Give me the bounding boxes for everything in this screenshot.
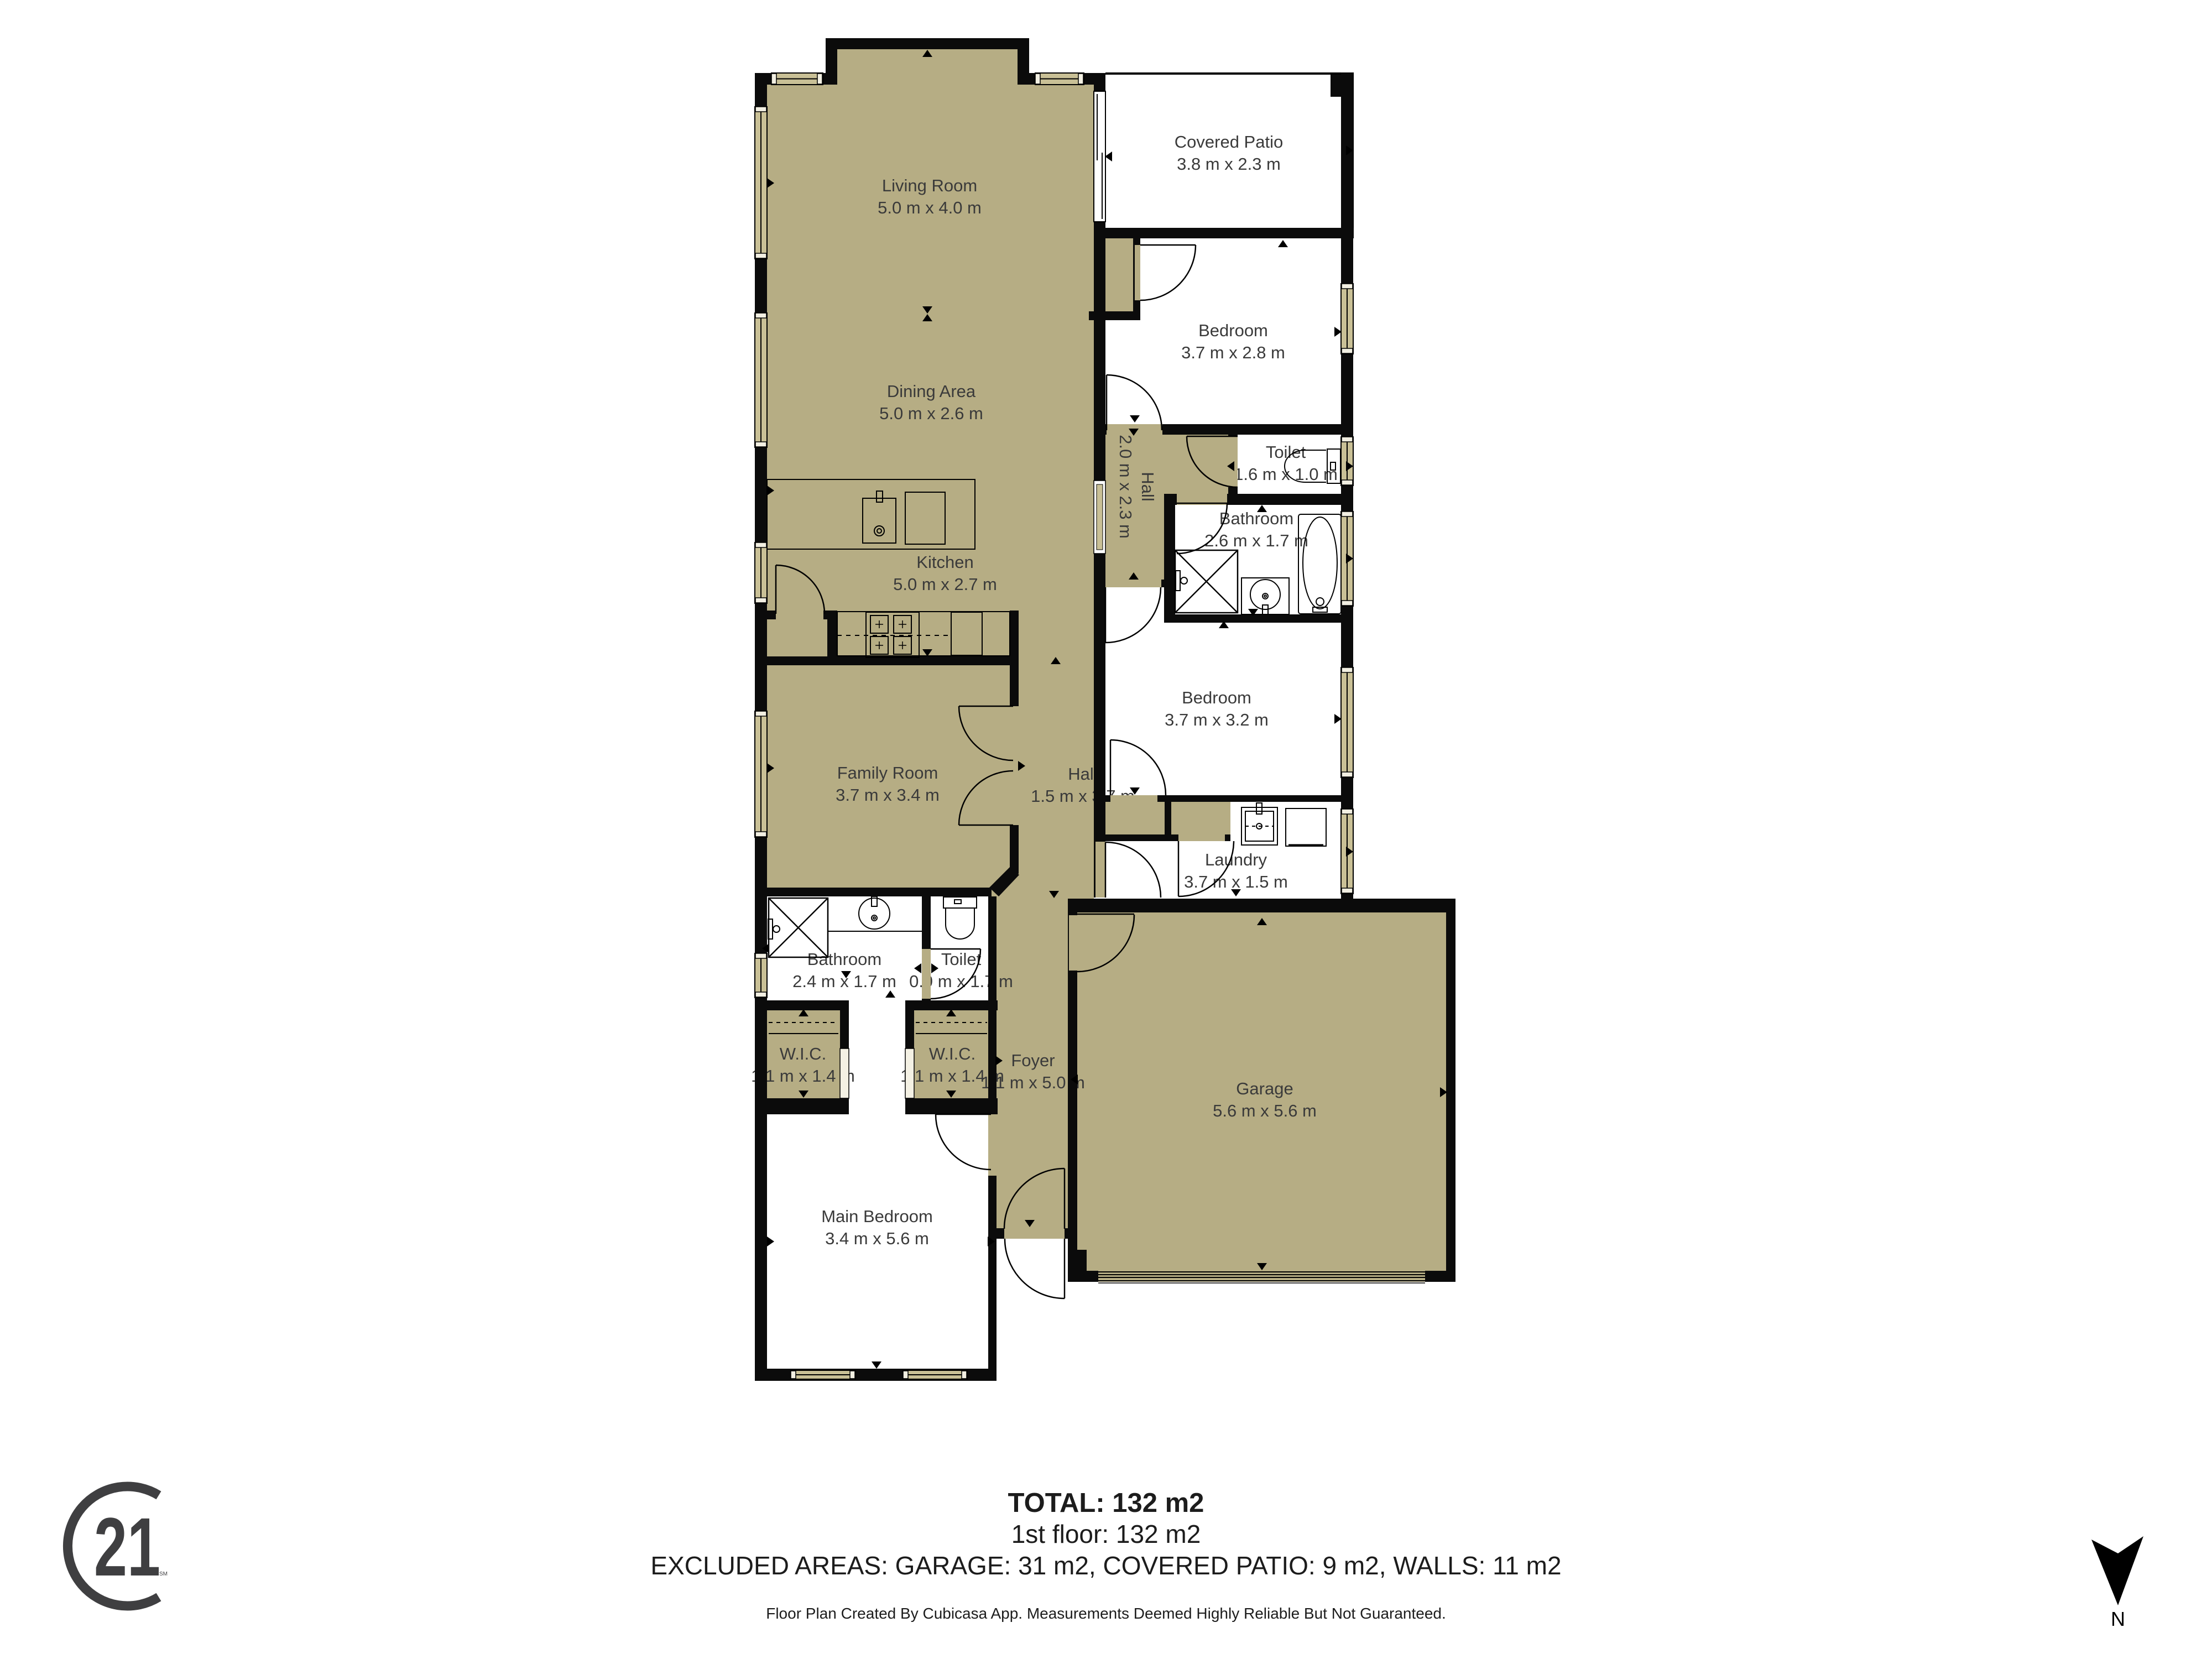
svg-text:Bathroom: Bathroom (1219, 509, 1293, 528)
svg-text:W.I.C.: W.I.C. (929, 1044, 975, 1063)
svg-text:TOTAL: 132 m2: TOTAL: 132 m2 (1008, 1488, 1204, 1518)
svg-text:Dining Area: Dining Area (887, 382, 976, 401)
svg-text:3.7 m x 1.5 m: 3.7 m x 1.5 m (1184, 872, 1288, 891)
svg-text:Laundry: Laundry (1205, 850, 1267, 869)
svg-text:5.6 m x 5.6 m: 5.6 m x 5.6 m (1213, 1101, 1317, 1120)
svg-text:3.7 m x 2.8 m: 3.7 m x 2.8 m (1181, 343, 1285, 362)
svg-text:N: N (2111, 1608, 2125, 1630)
svg-text:3.8 m x 2.3 m: 3.8 m x 2.3 m (1177, 154, 1281, 174)
svg-text:W.I.C.: W.I.C. (780, 1044, 826, 1063)
svg-text:Toilet: Toilet (941, 950, 982, 969)
svg-text:Floor Plan Created By Cubicasa: Floor Plan Created By Cubicasa App. Meas… (766, 1605, 1446, 1622)
svg-text:5.0 m x 2.6 m: 5.0 m x 2.6 m (879, 404, 983, 423)
svg-text:Main Bedroom: Main Bedroom (821, 1207, 933, 1226)
svg-text:1.6 m x 1.0 m: 1.6 m x 1.0 m (1234, 465, 1338, 484)
svg-text:5.0 m x 2.7 m: 5.0 m x 2.7 m (893, 575, 997, 594)
svg-text:1st floor: 132 m2: 1st floor: 132 m2 (1011, 1520, 1201, 1548)
svg-text:Toilet: Toilet (1266, 442, 1306, 462)
svg-text:Covered Patio: Covered Patio (1175, 132, 1283, 152)
svg-text:2.0 m x 2.3 m: 2.0 m x 2.3 m (1116, 435, 1135, 539)
svg-text:SM: SM (159, 1571, 168, 1577)
svg-text:Hall: Hall (1068, 764, 1097, 784)
svg-text:2.6 m x 1.7 m: 2.6 m x 1.7 m (1204, 531, 1308, 550)
svg-text:Garage: Garage (1236, 1079, 1293, 1098)
svg-text:3.4 m x 5.6 m: 3.4 m x 5.6 m (825, 1229, 929, 1248)
svg-text:Bedroom: Bedroom (1198, 321, 1268, 340)
svg-text:Living Room: Living Room (882, 176, 977, 195)
svg-text:Bedroom: Bedroom (1182, 688, 1251, 707)
svg-text:Bathroom: Bathroom (807, 950, 881, 969)
svg-text:Kitchen: Kitchen (916, 552, 973, 572)
svg-text:5.0 m x 4.0 m: 5.0 m x 4.0 m (878, 198, 982, 217)
svg-text:21: 21 (94, 1501, 160, 1594)
svg-text:EXCLUDED AREAS: GARAGE: 31 m2,: EXCLUDED AREAS: GARAGE: 31 m2, COVERED P… (650, 1551, 1561, 1580)
svg-text:Family Room: Family Room (837, 763, 938, 782)
svg-text:3.7 m x 3.4 m: 3.7 m x 3.4 m (836, 785, 940, 805)
svg-text:3.7 m x 3.2 m: 3.7 m x 3.2 m (1165, 710, 1269, 729)
svg-text:Foyer: Foyer (1011, 1051, 1055, 1070)
svg-text:Hall: Hall (1138, 472, 1157, 501)
